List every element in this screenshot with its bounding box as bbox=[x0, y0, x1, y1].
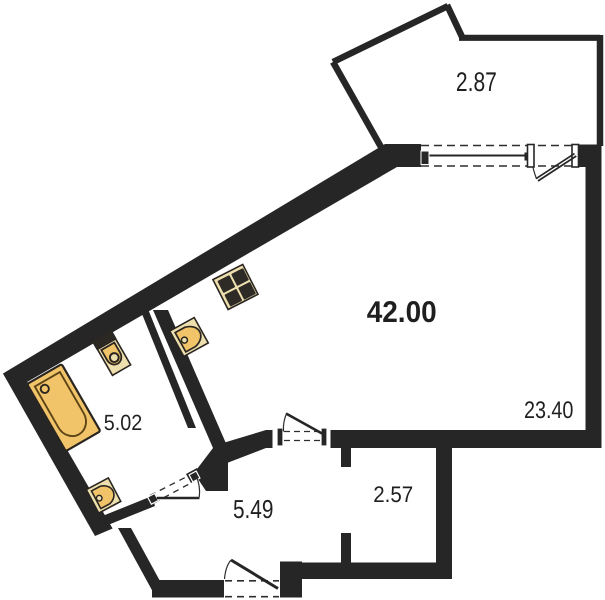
svg-text:5.02: 5.02 bbox=[104, 410, 143, 435]
svg-text:2.87: 2.87 bbox=[456, 67, 497, 97]
svg-text:42.00: 42.00 bbox=[367, 296, 437, 329]
svg-text:2.57: 2.57 bbox=[373, 482, 413, 507]
svg-text:23.40: 23.40 bbox=[524, 397, 574, 424]
svg-text:5.49: 5.49 bbox=[233, 494, 274, 524]
